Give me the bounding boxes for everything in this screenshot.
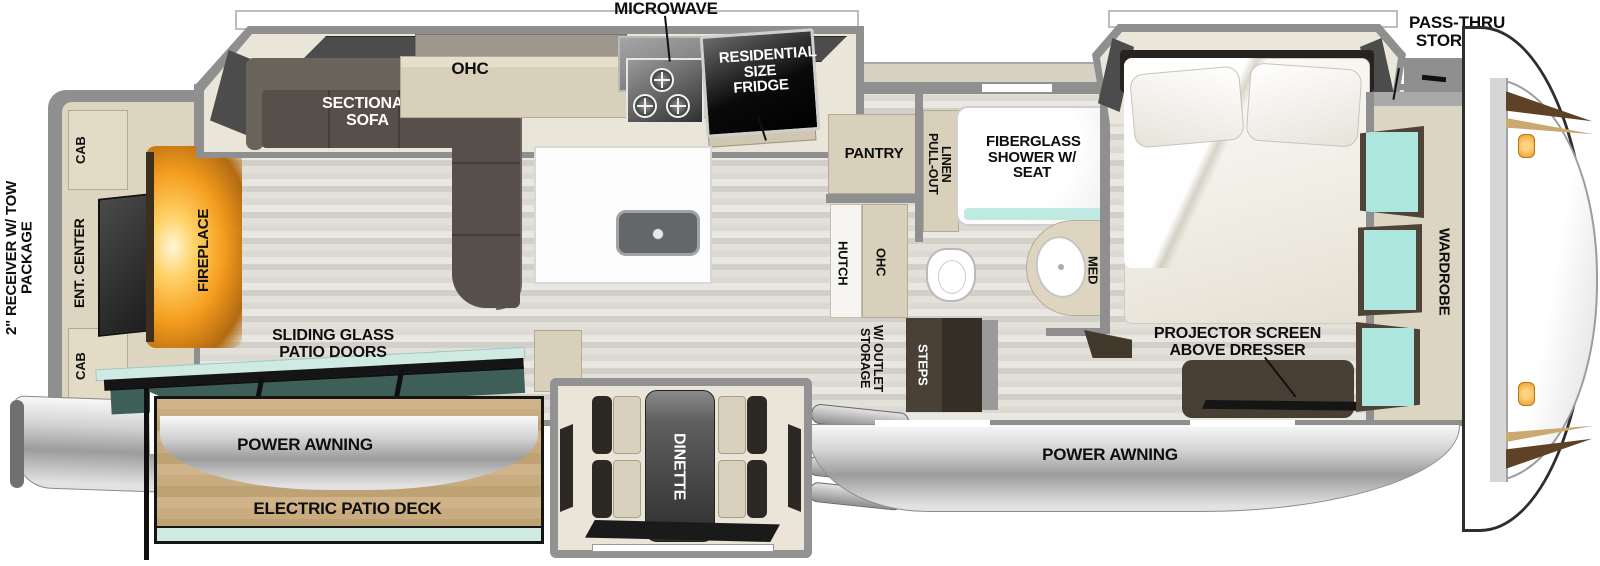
power-awning-patio-label: POWER AWNING: [210, 436, 400, 454]
patio-deck-group: [144, 388, 548, 554]
power-awning-main: [808, 424, 1460, 512]
dinette-chair-seat: [718, 460, 746, 518]
tv-screen: [98, 193, 152, 337]
toilet-seat: [938, 260, 966, 294]
wardrobe-mirror-door: [1356, 322, 1420, 412]
dinette-label: DINETTE: [670, 402, 692, 532]
pantry-wall: [826, 194, 922, 203]
kitchen-ohc-cabinet: [415, 34, 627, 58]
cab-bottom-label: CAB: [74, 336, 94, 396]
dinette-chair-back: [747, 396, 767, 454]
cap-marker-light: [1518, 134, 1535, 158]
rear-awning-endcap: [10, 400, 24, 488]
dinette-chair-seat: [613, 460, 641, 518]
shower-teal-edge: [964, 208, 1102, 220]
bath-wall-left: [915, 92, 923, 242]
projector-label: PROJECTOR SCREEN ABOVE DRESSER: [1140, 326, 1335, 359]
steps-landing: [982, 320, 998, 410]
ent-center-label: ENT. CENTER: [72, 196, 94, 330]
dinette-chair-back: [592, 396, 612, 454]
shower-label: FIBERGLASS SHOWER W/ SEAT: [986, 134, 1078, 181]
wall-window-sill: [875, 420, 990, 427]
dinette-side-window-right: [788, 424, 801, 512]
sofa-chaise: [452, 90, 520, 308]
pillow: [1245, 62, 1362, 148]
dinette-chair-back: [747, 460, 767, 518]
stove-burner-icon: [666, 94, 690, 118]
fireplace-glow: [146, 146, 242, 348]
faucet-icon: [652, 228, 664, 240]
sliding-doors-label: SLIDING GLASS PATIO DOORS: [248, 328, 418, 361]
pull-out-linen-label: PULL-OUT LINEN: [926, 128, 956, 200]
bath-window-gap: [982, 84, 1052, 92]
dinette-chair-seat: [718, 396, 746, 454]
dinette-window-sill: [592, 544, 774, 552]
dinette-side-window-left: [560, 424, 573, 512]
med-sink-drain: [1058, 264, 1064, 270]
fireplace-unit: [146, 152, 154, 342]
deck-frame-line: [144, 388, 149, 560]
dinette-chair-back: [592, 460, 612, 518]
electric-patio-deck-label: ELECTRIC PATIO DECK: [235, 500, 460, 518]
pantry-label: PANTRY: [830, 146, 918, 162]
stove-burner-icon: [650, 68, 674, 92]
bedroom-wall: [1100, 88, 1110, 334]
cap-marker-light: [1518, 382, 1535, 406]
kitchen-ohc-label: OHC: [440, 60, 500, 78]
wall-window-sill: [1190, 420, 1295, 427]
wardrobe-mirror-door: [1358, 224, 1422, 316]
fridge-label: RESIDENTIAL SIZE FRIDGE: [718, 45, 801, 97]
pillow: [1129, 65, 1245, 148]
storage-outlet-label: STORAGE W/ OUTLET: [858, 322, 900, 394]
wardrobe-mirror-door: [1360, 126, 1424, 218]
wardrobe-label: WARDROBE: [1436, 192, 1460, 352]
stove-burner-icon: [633, 94, 657, 118]
steps-label: STEPS: [916, 330, 936, 400]
dinette-chair-seat: [613, 396, 641, 454]
cab-top-label: CAB: [74, 120, 94, 180]
hutch-ohc-label: OHC: [874, 232, 894, 292]
front-cap-left-strip: [1490, 78, 1508, 482]
hutch-label: HUTCH: [836, 218, 856, 308]
rv-floorplan: 2" RECEIVER W/ TOW PACKAGE CAB ENT. CENT…: [0, 0, 1600, 566]
fireplace-label: FIREPLACE: [196, 162, 220, 338]
power-awning-main-label: POWER AWNING: [1020, 446, 1200, 464]
wardrobe-area-top-shadow: [1374, 92, 1470, 106]
deck-teal-strip: [157, 526, 541, 541]
receiver-label: 2" RECEIVER W/ TOW PACKAGE: [4, 148, 52, 368]
